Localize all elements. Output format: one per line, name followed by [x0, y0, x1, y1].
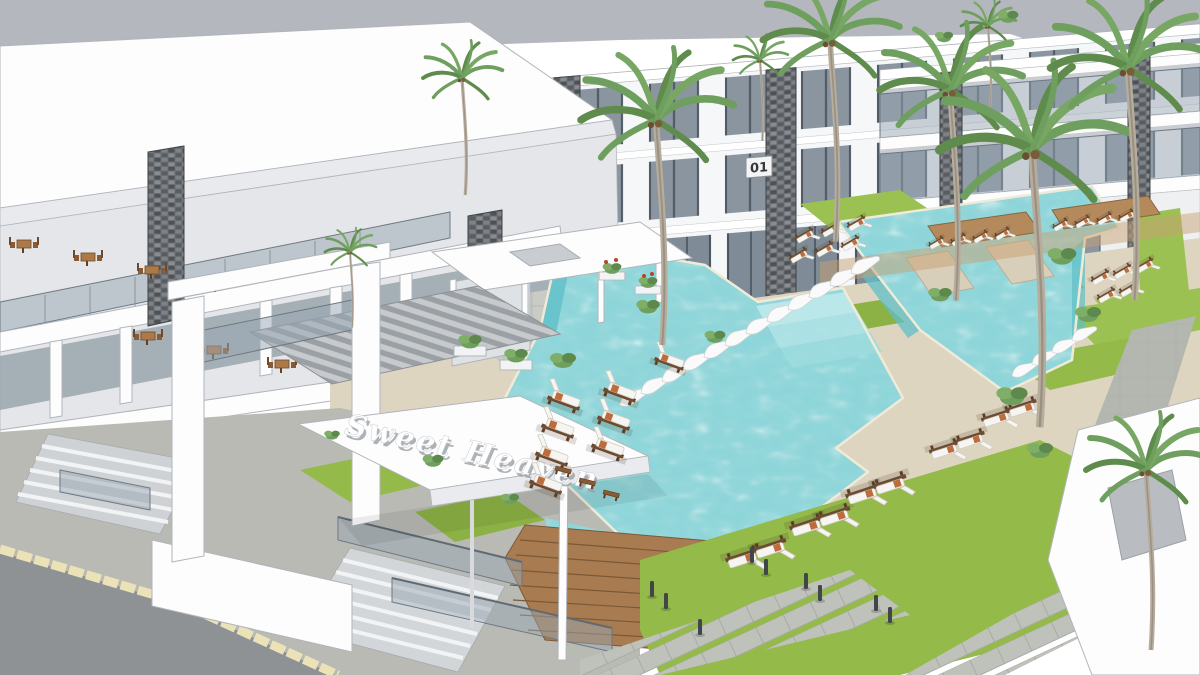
unit-number-plaque: 01	[746, 156, 772, 178]
stone-pier	[766, 68, 796, 301]
portal-pillar	[172, 296, 204, 562]
unit-number-text: 01	[750, 160, 768, 176]
architectural-render-sweet-heaven: 01	[0, 0, 1200, 675]
render-canvas: 01	[0, 0, 1200, 675]
stone-column	[148, 146, 184, 326]
canopy-post	[470, 500, 474, 628]
portal-pillar	[352, 262, 380, 526]
